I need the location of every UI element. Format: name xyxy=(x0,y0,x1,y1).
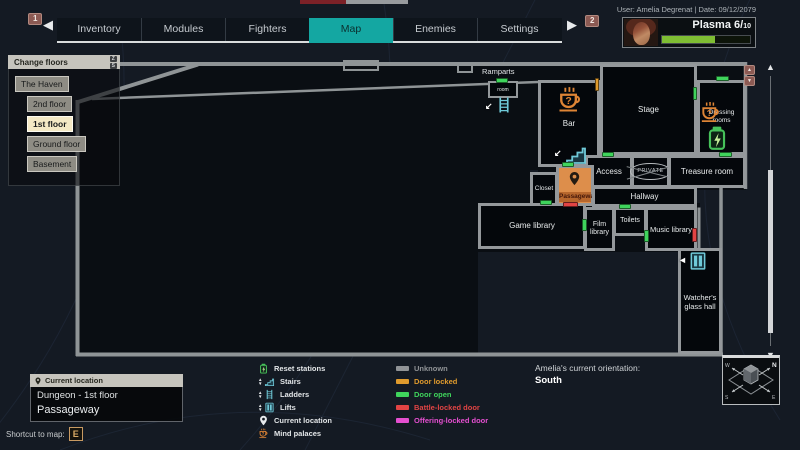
direction-arrow-icon: ◄ xyxy=(678,255,687,265)
up-down-arrows-icon: ▲▼ xyxy=(258,378,263,386)
door-marker-battle xyxy=(563,202,578,207)
room-toilets: Toilets xyxy=(613,207,647,236)
shortcut-keycap: E xyxy=(69,427,83,441)
top-hud-bar-red xyxy=(300,0,346,4)
room-private: PRIVATE xyxy=(631,155,670,188)
scroll-up-arrow[interactable]: ▲ xyxy=(766,62,775,72)
player-status-panel: Plasma 6/10 xyxy=(622,17,756,48)
tab-fighters[interactable]: Fighters xyxy=(225,18,309,41)
legend-door-open: Door open xyxy=(396,388,531,401)
room-hallway: Hallway xyxy=(592,186,697,207)
top-hud-bar-gray xyxy=(346,0,408,4)
mind-palace-icon xyxy=(556,86,584,119)
tab-map[interactable]: Map xyxy=(309,18,393,43)
compass-w: W xyxy=(725,363,730,369)
direction-arrow-icon: ↙ xyxy=(554,148,562,159)
room-stage: Stage xyxy=(600,64,697,155)
tab-settings[interactable]: Settings xyxy=(477,18,561,41)
room-label: Music library xyxy=(650,225,692,234)
room-label: Closet xyxy=(535,185,553,193)
page-key-badge-2: 2 xyxy=(585,15,599,27)
change-floors-header: Change floors Z S xyxy=(8,55,120,69)
tab-inventory[interactable]: Inventory xyxy=(57,18,141,41)
legend-stairs: ▲▼ Stairs xyxy=(258,375,388,388)
ladder-icon: ↙ xyxy=(495,96,513,119)
change-floors-title: Change floors xyxy=(14,58,68,67)
door-marker-open xyxy=(540,200,552,205)
room-label: Access xyxy=(596,167,622,177)
prev-tab-arrow[interactable]: ◀ xyxy=(43,18,53,31)
room-label: Passageway xyxy=(559,192,591,202)
door-swatch xyxy=(396,405,409,410)
orientation-info: Amelia's current orientation: South xyxy=(535,363,640,386)
floor-item-2nd-floor[interactable]: 2nd floor xyxy=(27,96,72,112)
room-label: Treasure room xyxy=(681,167,733,177)
door-marker-open xyxy=(719,152,732,157)
scroll-up-key: ▲ xyxy=(744,65,755,75)
up-down-arrows-icon: ▲▼ xyxy=(258,404,263,412)
private-sign: PRIVATE xyxy=(630,163,670,180)
door-swatch xyxy=(396,392,409,397)
room-label: Hallway xyxy=(630,192,658,202)
legend-lifts: ▲▼ Lifts xyxy=(258,401,388,414)
room-label: Watcher's glass hall xyxy=(682,293,718,311)
legend-current-location: Current location xyxy=(258,414,388,427)
floors-list: The Haven 2nd floor 1st floor Ground flo… xyxy=(8,69,120,186)
location-room: Passageway xyxy=(37,404,176,416)
compass-s: S xyxy=(725,395,729,401)
scroll-down-key: ▼ xyxy=(744,76,755,86)
map-vertical-scrollbar[interactable]: ▲ ▼ xyxy=(762,62,780,360)
scroll-thumb[interactable] xyxy=(768,170,773,333)
door-marker-open xyxy=(602,152,614,157)
current-location-header: Current location xyxy=(30,374,183,387)
map-shortcut-hint: Shortcut to map: E xyxy=(6,427,83,441)
floor-item-basement[interactable]: Basement xyxy=(27,156,77,172)
user-date-info: User: Amelia Degrenat | Date: 09/12/2079 xyxy=(617,5,756,14)
door-marker-open xyxy=(619,204,631,209)
room-label-ramparts: Ramparts xyxy=(482,67,515,76)
change-floors-panel: Change floors Z S The Haven 2nd floor 1s… xyxy=(8,55,120,186)
floor-key-hints: Z S xyxy=(110,56,117,69)
legend-door-locked: Door locked xyxy=(396,375,531,388)
page-key-badge-1: 1 xyxy=(28,13,42,25)
key-hint-up: Z xyxy=(110,56,117,62)
up-down-arrows-icon: ▲▼ xyxy=(258,391,263,399)
direction-arrow-icon: ↙ xyxy=(485,101,493,112)
location-area: Dungeon - 1st floor xyxy=(37,390,176,401)
key-hint-down: S xyxy=(110,63,117,69)
room-label: Film library xyxy=(588,221,611,238)
legend-mind-palaces: Mind palaces xyxy=(258,427,388,440)
door-marker-locked xyxy=(595,78,599,91)
door-marker-open xyxy=(693,87,697,100)
plasma-bar xyxy=(661,35,751,44)
floor-item-1st-floor[interactable]: 1st floor xyxy=(27,116,73,132)
compass-n: N xyxy=(772,362,777,369)
floor-item-the-haven[interactable]: The Haven xyxy=(15,76,69,92)
legend-door-battle-locked: Battle-locked door xyxy=(396,401,531,414)
plasma-counter: Plasma 6/10 xyxy=(692,19,751,31)
door-swatch xyxy=(396,366,409,371)
plasma-bar-fill xyxy=(662,36,715,43)
shortcut-label: Shortcut to map: xyxy=(6,430,65,439)
next-tab-arrow[interactable]: ▶ xyxy=(567,18,577,31)
room-label: Bar xyxy=(563,119,575,129)
legend-door-unknown: Unknown xyxy=(396,362,531,375)
tab-enemies[interactable]: Enemies xyxy=(393,18,477,41)
room-label: Toilets xyxy=(620,217,640,225)
orientation-value: South xyxy=(535,375,640,386)
scroll-key-hints: ▲ ▼ xyxy=(744,65,755,86)
orientation-label: Amelia's current orientation: xyxy=(535,363,640,373)
current-location-panel: Current location Dungeon - 1st floor Pas… xyxy=(30,374,183,422)
legend-ladders: ▲▼ Ladders xyxy=(258,388,388,401)
door-marker-open xyxy=(582,219,587,231)
legend-reset-stations: Reset stations xyxy=(258,362,388,375)
lift-icon: ◄ xyxy=(688,251,708,276)
door-marker-open xyxy=(716,76,729,81)
legend-door-offering-locked: Offering-locked door xyxy=(396,414,531,427)
pin-dark-icon xyxy=(567,171,582,191)
door-swatch xyxy=(396,379,409,384)
player-avatar xyxy=(624,19,658,46)
compass-indicator: N W E S xyxy=(722,355,780,405)
room-game-library: Game library xyxy=(478,203,586,249)
room-label: Game library xyxy=(509,221,555,231)
room-film-library: Film library xyxy=(584,207,615,251)
room-music-library: Music library xyxy=(645,207,697,251)
compass-e: E xyxy=(772,395,776,401)
door-swatch xyxy=(396,418,409,423)
door-marker-open xyxy=(562,162,574,167)
room-label: room xyxy=(497,87,508,93)
door-marker-open xyxy=(496,78,508,83)
tab-modules[interactable]: Modules xyxy=(141,18,225,41)
floor-item-ground-floor[interactable]: Ground floor xyxy=(27,136,86,152)
tab-bar: Inventory Modules Fighters Map Enemies S… xyxy=(57,18,562,43)
room-treasure-room: Treasure room xyxy=(668,155,746,188)
room-label: Stage xyxy=(638,105,659,115)
door-marker-open xyxy=(644,230,649,242)
door-marker-battle xyxy=(692,228,697,242)
